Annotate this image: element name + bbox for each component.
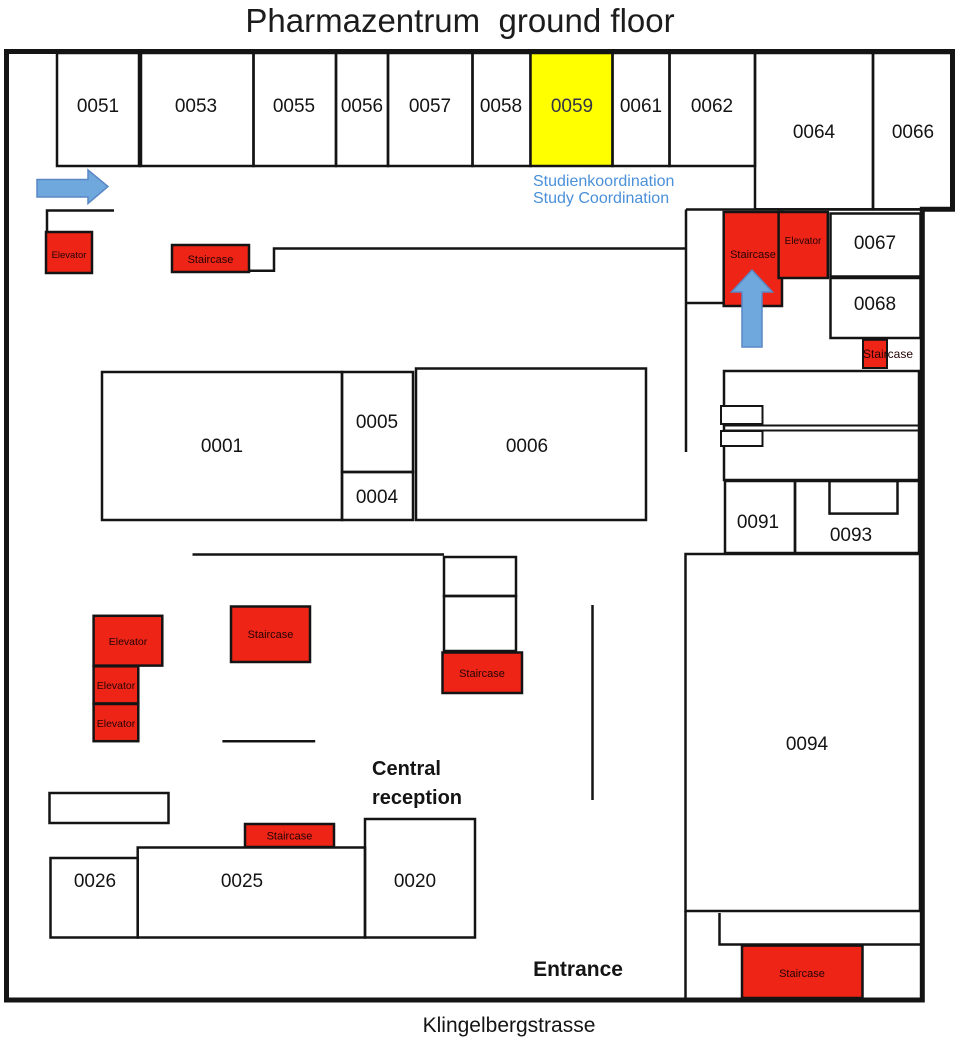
- svg-text:reception: reception: [372, 787, 462, 809]
- svg-text:Elevator: Elevator: [785, 236, 822, 247]
- svg-text:0064: 0064: [793, 122, 836, 143]
- svg-text:Staircase: Staircase: [248, 629, 294, 641]
- svg-text:0025: 0025: [221, 871, 263, 892]
- svg-text:0057: 0057: [409, 96, 451, 117]
- svg-text:0091: 0091: [737, 512, 779, 533]
- svg-text:Central: Central: [372, 758, 441, 780]
- svg-text:Entrance: Entrance: [533, 958, 623, 981]
- svg-text:0068: 0068: [854, 294, 896, 315]
- svg-text:Studienkoordination: Studienkoordination: [533, 173, 674, 190]
- svg-text:Staircase: Staircase: [459, 668, 505, 680]
- svg-text:0005: 0005: [356, 412, 398, 433]
- svg-text:0061: 0061: [620, 96, 662, 117]
- svg-text:0059: 0059: [551, 96, 593, 117]
- svg-text:0056: 0056: [341, 96, 383, 117]
- svg-text:Elevator: Elevator: [97, 718, 136, 730]
- svg-text:0067: 0067: [854, 233, 896, 254]
- svg-text:0006: 0006: [506, 436, 548, 457]
- svg-text:Pharmazentrum ground floor: Pharmazentrum ground floor: [245, 2, 674, 39]
- svg-text:Elevator: Elevator: [109, 636, 148, 648]
- svg-text:0055: 0055: [273, 96, 315, 117]
- svg-text:0058: 0058: [480, 96, 522, 117]
- svg-text:0026: 0026: [74, 871, 116, 892]
- svg-text:0093: 0093: [830, 525, 872, 546]
- svg-text:0062: 0062: [691, 96, 733, 117]
- svg-text:Staircase: Staircase: [730, 249, 776, 261]
- svg-text:0001: 0001: [201, 436, 243, 457]
- svg-text:Staircase: Staircase: [863, 347, 913, 361]
- svg-text:Elevator: Elevator: [97, 680, 136, 692]
- svg-text:0053: 0053: [175, 96, 217, 117]
- svg-text:Elevator: Elevator: [52, 250, 87, 261]
- svg-text:Staircase: Staircase: [188, 254, 234, 266]
- svg-text:0066: 0066: [892, 122, 934, 143]
- svg-text:Klingelbergstrasse: Klingelbergstrasse: [423, 1014, 596, 1037]
- svg-text:Staircase: Staircase: [779, 968, 825, 980]
- svg-text:0051: 0051: [77, 96, 119, 117]
- svg-text:Study Coordination: Study Coordination: [533, 190, 669, 207]
- svg-text:0004: 0004: [356, 487, 399, 508]
- svg-text:0094: 0094: [786, 734, 829, 755]
- svg-text:Staircase: Staircase: [267, 831, 313, 843]
- svg-text:0020: 0020: [394, 871, 436, 892]
